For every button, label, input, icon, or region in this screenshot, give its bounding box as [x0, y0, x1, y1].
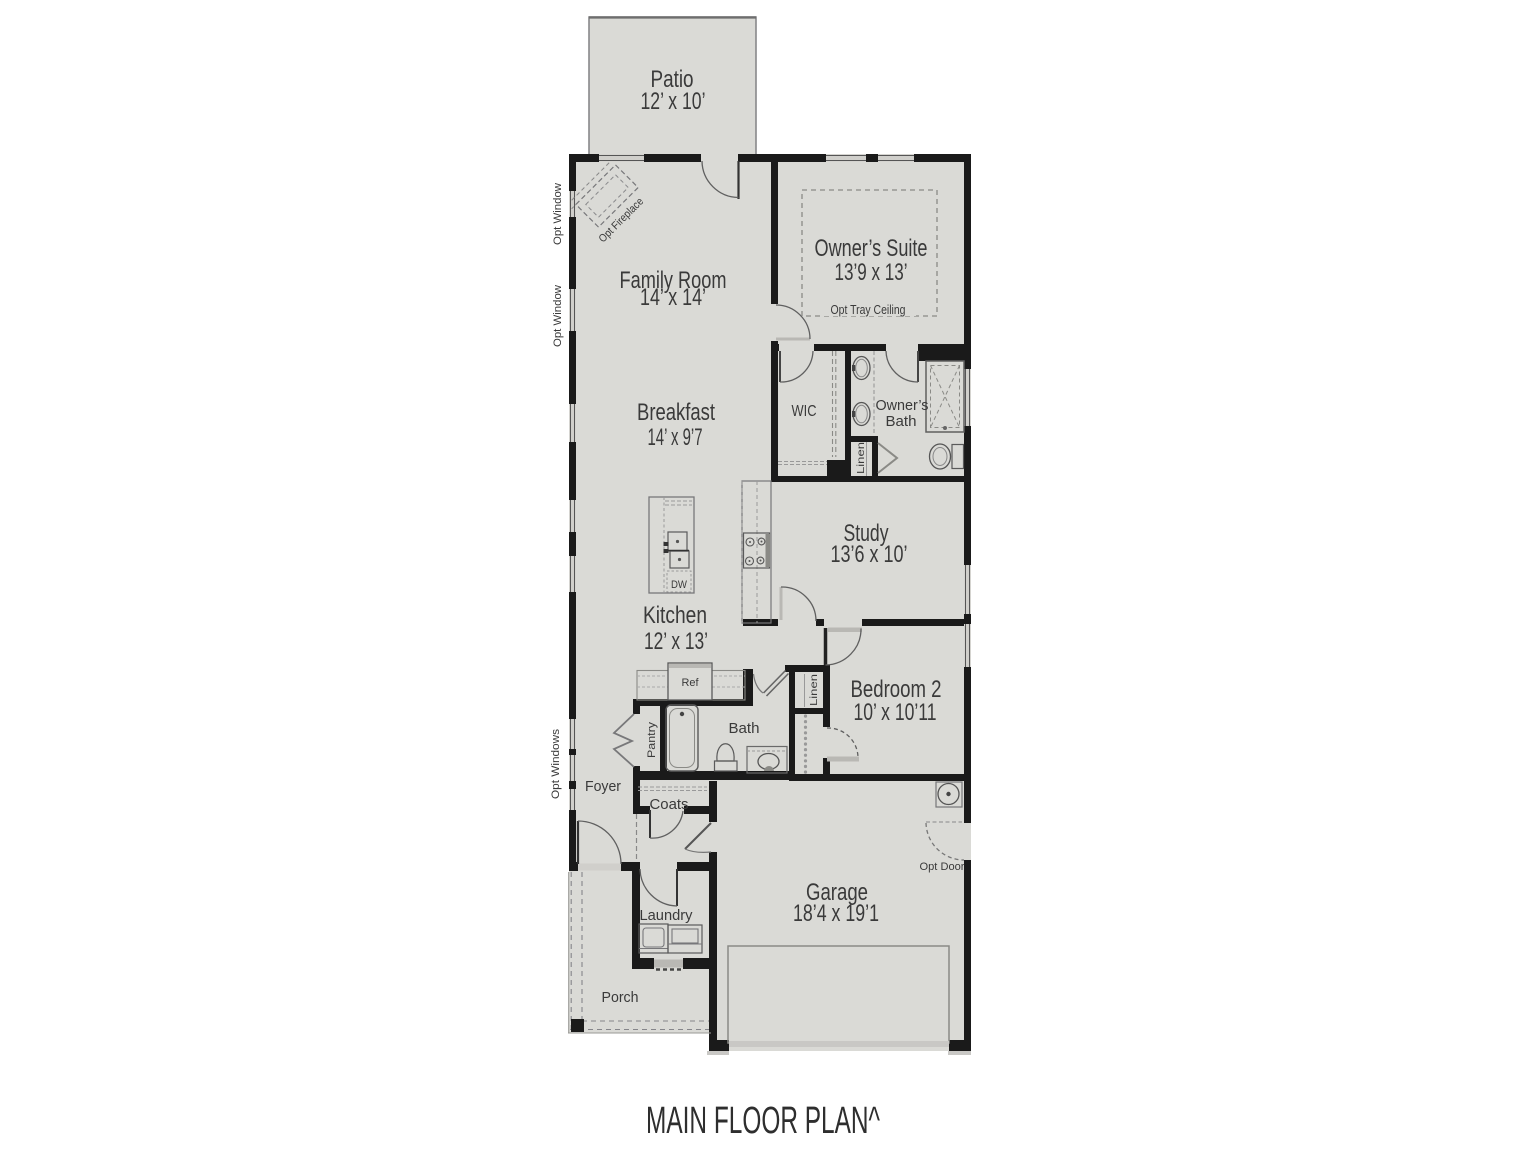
svg-text:Owner’s Suite: Owner’s Suite [815, 235, 928, 262]
svg-text:14’ x 9’7: 14’ x 9’7 [648, 424, 703, 451]
svg-text:Porch: Porch [602, 989, 639, 1006]
svg-text:Ref: Ref [682, 677, 700, 689]
svg-text:Coats: Coats [650, 796, 689, 813]
svg-text:12’ x 10’: 12’ x 10’ [641, 88, 706, 115]
svg-text:Opt Windows: Opt Windows [550, 728, 562, 799]
svg-text:Linen: Linen [808, 674, 820, 706]
svg-text:Opt Window: Opt Window [552, 285, 564, 347]
svg-text:13’6 x 10’: 13’6 x 10’ [831, 541, 908, 568]
svg-text:Pantry: Pantry [646, 721, 658, 758]
svg-text:Laundry: Laundry [640, 907, 693, 924]
svg-text:10’ x 10’11: 10’ x 10’11 [854, 699, 937, 726]
svg-text:DW: DW [671, 579, 688, 591]
svg-text:Foyer: Foyer [585, 778, 621, 795]
svg-text:Bath: Bath [886, 413, 917, 430]
svg-text:14’ x 14’: 14’ x 14’ [640, 284, 706, 311]
svg-text:Kitchen: Kitchen [643, 602, 707, 629]
svg-text:Opt Window: Opt Window [552, 183, 564, 245]
svg-text:MAIN FLOOR PLAN^: MAIN FLOOR PLAN^ [646, 1100, 880, 1142]
svg-text:Breakfast: Breakfast [637, 399, 715, 426]
svg-text:18’4 x 19’1: 18’4 x 19’1 [793, 900, 879, 927]
svg-text:Linen: Linen [855, 442, 867, 474]
svg-text:Opt Tray Ceiling: Opt Tray Ceiling [831, 302, 906, 317]
svg-text:12’ x 13’: 12’ x 13’ [644, 628, 708, 655]
svg-text:WIC: WIC [792, 403, 817, 420]
svg-text:13’9 x 13’: 13’9 x 13’ [835, 259, 908, 286]
svg-text:Opt Door: Opt Door [920, 861, 965, 873]
svg-text:Owner’s: Owner’s [876, 397, 929, 414]
svg-text:Bath: Bath [729, 720, 760, 737]
